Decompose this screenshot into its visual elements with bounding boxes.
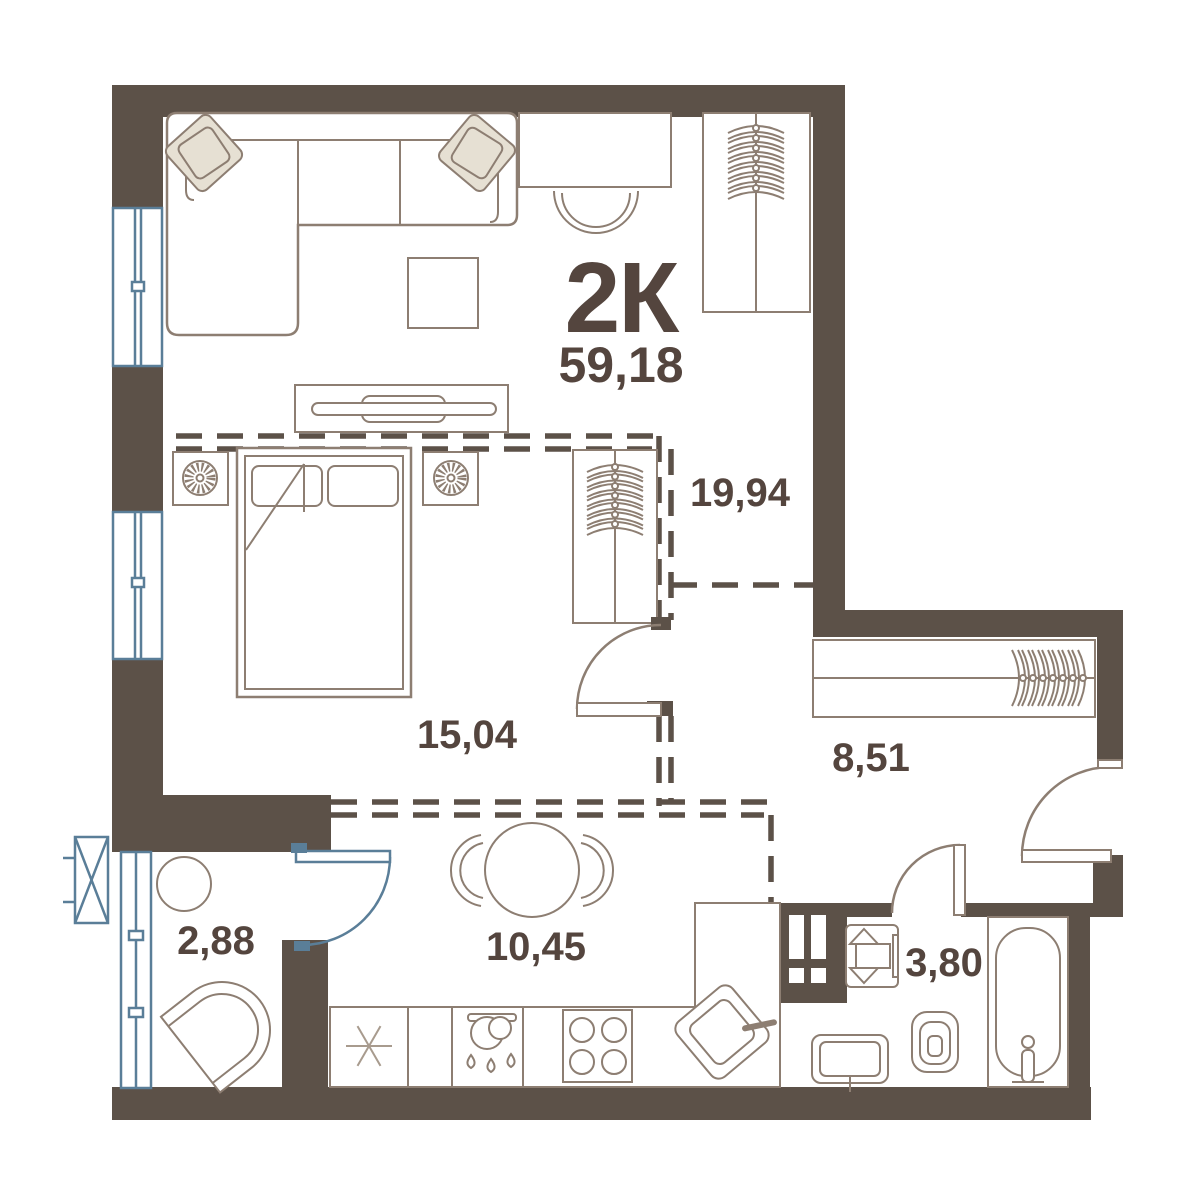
plan-total-area: 59,18 bbox=[558, 337, 683, 393]
living-room bbox=[163, 112, 810, 432]
vent-shaft bbox=[780, 903, 847, 1003]
washing-machine-icon bbox=[846, 925, 898, 987]
floor-plan-svg: 2К 59,18 19,94 15,04 10,45 8,51 3,80 2,8… bbox=[0, 0, 1200, 1200]
area-living-room: 19,94 bbox=[690, 471, 791, 515]
bathtub-icon bbox=[988, 917, 1068, 1087]
dining-set-icon bbox=[451, 823, 613, 917]
desk-icon bbox=[519, 113, 671, 233]
tv-console-icon bbox=[295, 385, 508, 432]
wardrobe-icon bbox=[703, 113, 810, 312]
bathroom-door bbox=[892, 845, 965, 915]
toilet-icon bbox=[912, 1012, 958, 1072]
wardrobe-icon bbox=[573, 450, 657, 623]
area-hallway: 8,51 bbox=[832, 736, 910, 780]
coffee-table-icon bbox=[408, 258, 478, 328]
window-top-left bbox=[113, 208, 162, 366]
bed-pillow-icon bbox=[328, 466, 398, 506]
bedroom bbox=[173, 448, 673, 716]
bath-sink-icon bbox=[812, 1035, 888, 1092]
floor-plan: 2К 59,18 19,94 15,04 10,45 8,51 3,80 2,8… bbox=[0, 0, 1200, 1200]
hallway-wardrobe-icon bbox=[813, 640, 1095, 717]
area-kitchen: 10,45 bbox=[486, 925, 586, 969]
entrance-door bbox=[1022, 760, 1122, 862]
balcony-table-icon bbox=[157, 857, 211, 911]
stove-icon bbox=[563, 1010, 632, 1082]
area-bathroom: 3,80 bbox=[905, 941, 983, 985]
windows bbox=[63, 208, 162, 1088]
bed-pillow-icon bbox=[252, 466, 322, 506]
ac-unit-icon bbox=[63, 837, 108, 923]
bedroom-door bbox=[577, 617, 673, 716]
balcony-door bbox=[291, 843, 390, 951]
double-bed-icon bbox=[237, 448, 411, 697]
balcony-glazing bbox=[121, 852, 151, 1088]
round-table-icon bbox=[485, 823, 579, 917]
balcony-chair-icon bbox=[161, 963, 289, 1093]
window-mid-left bbox=[113, 512, 162, 659]
area-balcony: 2,88 bbox=[177, 919, 255, 963]
area-bedroom: 15,04 bbox=[417, 713, 518, 757]
